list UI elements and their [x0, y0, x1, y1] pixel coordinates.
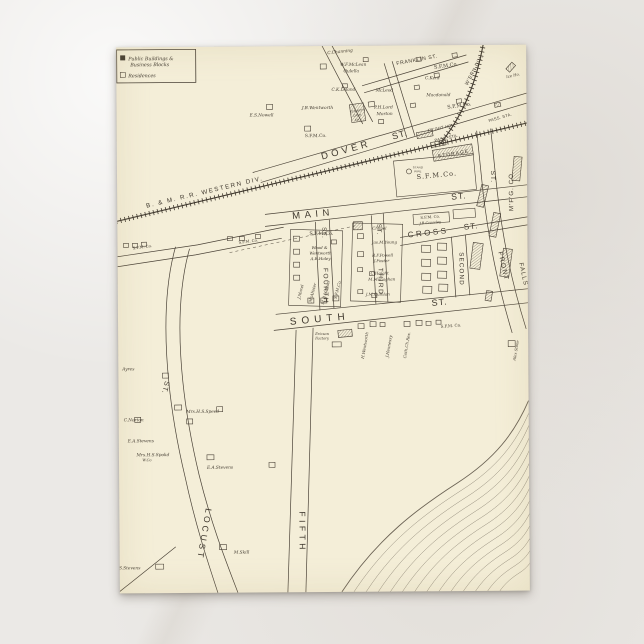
residence-building: [379, 120, 384, 124]
map-label: M.Monaghan: [367, 276, 395, 281]
map-label: C.K.Leland: [331, 88, 355, 93]
residence-building: [453, 208, 476, 219]
map-label: C.Norton: [124, 418, 144, 423]
river-contour-line: [486, 545, 530, 592]
map-label: Macdonald: [425, 93, 450, 98]
residence-building: [357, 234, 363, 239]
map-label: S.F.M.Co.: [447, 101, 472, 111]
buildings-layer: [122, 52, 525, 569]
residence-building: [438, 271, 447, 278]
residence-building: [207, 455, 214, 460]
map-label: R.F.Powell: [371, 253, 394, 258]
map-label: SECOND: [458, 252, 465, 286]
public-building: [353, 222, 362, 230]
top-street-2-east: [392, 61, 415, 135]
map-label: J.Hennessy: [384, 334, 393, 359]
residence-building: [123, 243, 128, 247]
public-building: [477, 184, 489, 207]
legend-public-buildings-line1: Public Buildings &: [127, 56, 173, 62]
map-label: Mrs.H.S.Spokd: [135, 453, 169, 458]
map-canvas: B. & M. R.R. WESTERN DIV.DOVERST.FRANKLI…: [116, 45, 530, 594]
map-label: C.Kent: [425, 76, 440, 81]
residence-building: [358, 268, 363, 272]
residence-building: [423, 286, 432, 293]
residence-building: [294, 275, 300, 280]
river-contour-line: [341, 401, 530, 592]
public-building: [506, 62, 516, 72]
residence-building: [437, 257, 446, 264]
map-label: LOCUST: [195, 508, 214, 561]
residence-building: [426, 321, 431, 325]
residence-building: [320, 64, 326, 69]
map-label: J.M.Quinlan: [365, 292, 390, 297]
residence-building: [363, 58, 368, 62]
map-label: J.B.Crossley: [418, 220, 442, 226]
public-building: [494, 102, 501, 107]
residence-building: [269, 462, 275, 467]
map-label: W'ERN DIV.: [464, 55, 485, 87]
map-label: H.Wentworth: [360, 331, 370, 360]
map-label: ST.: [431, 296, 448, 307]
residence-building: [156, 564, 164, 569]
residence-building: [370, 322, 376, 327]
map-label: Wentworth: [309, 250, 332, 255]
map-label: B. & M. R.R. WESTERN DIV.: [145, 175, 264, 210]
residence-building: [305, 126, 311, 131]
residence-building: [437, 243, 446, 250]
map-label: ST.: [489, 171, 496, 183]
residence-building: [416, 320, 422, 325]
vintage-map-postcard: B. & M. R.R. WESTERN DIV.DOVERST.FRANKLI…: [116, 45, 530, 594]
map-label: Ayres: [121, 367, 135, 372]
map-label: A.B.Haley: [309, 256, 331, 261]
legend-residences: Residences: [127, 73, 156, 79]
map-label: S.F.M.Co.: [305, 133, 327, 139]
residence-building: [410, 103, 416, 108]
map-label: ST.: [160, 380, 170, 394]
residence-building: [162, 373, 168, 378]
residence-building: [422, 273, 431, 280]
road-upper-west-2: [116, 238, 282, 267]
map-label: PASS. STA.: [434, 133, 459, 143]
residence-building: [414, 85, 420, 90]
map-label: S.F.M.Co.: [309, 231, 334, 237]
map-label: CROSS: [407, 226, 449, 240]
map-label: S.F.M.Co.: [434, 61, 459, 71]
map-label: S.Stevens: [119, 566, 141, 571]
map-label: M.Skill: [233, 551, 250, 556]
river-contour-line: [499, 557, 530, 592]
map-label: FIFTH: [297, 511, 307, 553]
map-label: P.H.Lord: [373, 106, 393, 111]
map-label: FALLS: [517, 262, 529, 287]
residence-building: [404, 321, 410, 326]
residence-building: [439, 284, 448, 291]
map-legend: Public Buildings & Business Blocks Resid…: [117, 49, 196, 83]
river-contour-line: [377, 437, 530, 592]
marble-background: B. & M. R.R. WESTERN DIV.DOVERST.FRANKLI…: [0, 0, 644, 644]
dover-street-south: [261, 103, 530, 183]
residence-building: [175, 405, 182, 410]
map-label: C.Channing: [327, 48, 353, 56]
residence-building: [267, 104, 273, 109]
map-label: S.F.M. Co.: [132, 243, 152, 250]
map-label: S.F.M.Co.: [416, 169, 457, 181]
public-building-swatch-icon: [120, 55, 125, 60]
public-building: [485, 290, 493, 301]
map-label: McAlister: [307, 281, 317, 303]
map-label: CH.: [355, 117, 361, 122]
map-label: E.A.Stevens: [127, 439, 155, 444]
residence-building: [294, 249, 300, 254]
public-building: [489, 212, 501, 237]
fifth-street-west: [286, 330, 298, 592]
residence-building: [294, 262, 300, 267]
public-building: [338, 329, 353, 337]
residence-building: [380, 323, 385, 327]
map-label: ST.: [463, 221, 478, 232]
residence-building: [332, 342, 341, 347]
stand-pipe-icon: [406, 169, 411, 174]
map-label: Cath.Ch.Res.: [402, 332, 411, 359]
river-contour-line: [438, 497, 530, 592]
map-label: C.Haight: [371, 271, 390, 276]
map-label: Ericson: [314, 332, 330, 336]
map-label: E.S.Nowell: [249, 113, 275, 118]
residence-building: [422, 259, 431, 266]
legend-public-buildings-line2: Business Blocks: [129, 62, 170, 68]
map-label: Wood &: [311, 245, 328, 250]
residence-building: [358, 324, 364, 329]
map-label: Mrs.H.S.Speed: [185, 410, 219, 415]
second-street-west: [451, 237, 455, 297]
residence-building: [421, 245, 430, 252]
map-label: ST.: [451, 190, 467, 201]
map-label: Oulella: [343, 69, 359, 74]
map-label: E.A.Stevens: [206, 466, 234, 471]
river-contour-line: [474, 533, 530, 592]
map-label: M'F'G. CO.: [508, 170, 515, 211]
public-building: [470, 242, 483, 269]
map-label: Alex Stone: [511, 339, 520, 362]
residence-swatch-icon: [120, 72, 125, 77]
map-label: J.Morel: [296, 283, 305, 300]
top-street-2-west: [384, 63, 407, 137]
river-contour-line: [365, 425, 530, 592]
residence-building: [331, 240, 336, 244]
map-label: W.Co: [142, 458, 152, 462]
map-label: MAIN: [292, 207, 335, 222]
residence-building: [358, 290, 363, 294]
residence-building: [358, 252, 364, 257]
map-label: Factory: [314, 336, 330, 340]
river-contour-line: [353, 413, 530, 592]
map-label: J.Foster: [373, 258, 391, 263]
residence-building: [452, 53, 458, 58]
map-label: McLeod: [375, 89, 394, 94]
map-label: Chapel: [372, 226, 387, 231]
locust-street-west: [165, 247, 218, 593]
river-contour-line: [389, 449, 530, 592]
front-street-north-west: [477, 131, 483, 193]
map-label: W.F.McLean: [340, 63, 367, 68]
map-label: Ice Ho.: [505, 71, 521, 79]
river-contour-line: [426, 485, 530, 592]
river-contour-line: [462, 521, 530, 592]
second-street-east: [465, 235, 469, 295]
map-label: S.F.M. Co.: [420, 214, 440, 220]
map-label: Jas.M.Young: [371, 239, 398, 244]
map-label: DOVER: [320, 138, 372, 162]
river-hachure: [341, 401, 530, 594]
map-label: S.F.M. Co.: [440, 322, 461, 329]
map-label: J.B.Wentworth: [301, 106, 333, 111]
map-label: Morton: [375, 112, 392, 117]
